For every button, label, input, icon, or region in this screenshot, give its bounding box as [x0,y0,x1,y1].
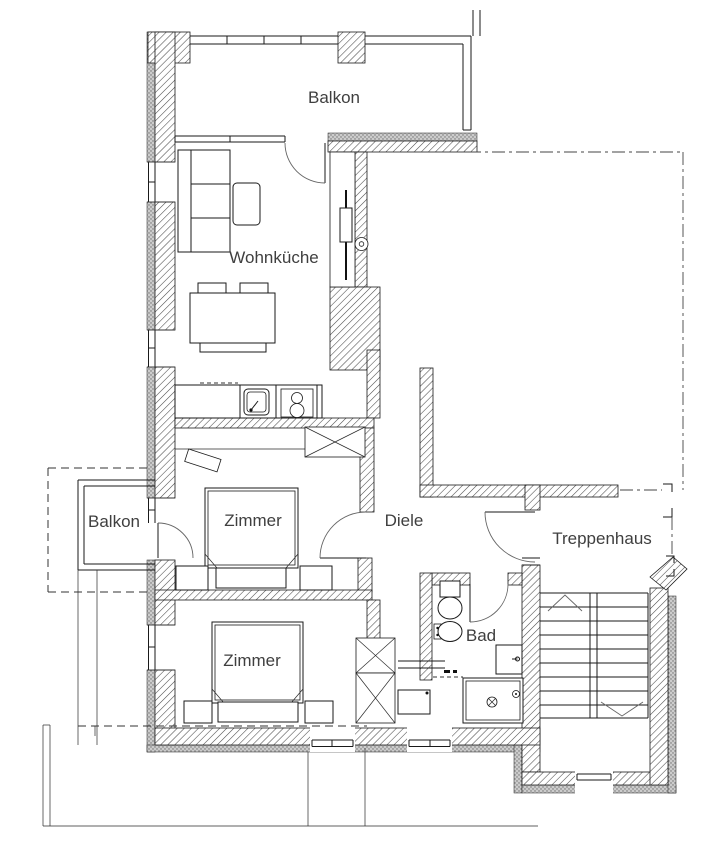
bed-bench [216,568,286,588]
washbasin-cabinet [496,645,522,674]
kitchen-sink [244,389,269,415]
room-label-zimmer-1: Zimmer [224,511,282,530]
floor-plan-page: Balkon Wohnküche Balkon Zimmer Diele Tre… [0,0,705,856]
room-label-treppenhaus: Treppenhaus [552,529,652,548]
nightstand [305,701,333,723]
coffee-table [233,183,260,225]
bench [200,343,266,352]
bed-bench [218,702,298,722]
stove [281,389,313,418]
room-label-wohnkueche: Wohnküche [229,248,318,267]
wardrobe-x [356,638,395,673]
bidet-icon [434,622,462,642]
floor-plan-canvas: Balkon Wohnküche Balkon Zimmer Diele Tre… [0,0,705,856]
chair [240,283,268,294]
dining-table [190,293,275,343]
room-label-diele: Diele [385,511,424,530]
nightstand [300,566,332,590]
shower [463,678,523,723]
wardrobe-x [356,673,395,723]
sofa [178,150,230,252]
dining-table-group [190,283,275,352]
chair [198,283,226,294]
nightstand [184,701,212,723]
flue-icon [355,238,368,251]
washing-machine [398,690,430,714]
wardrobe-x [305,427,365,457]
nightstand [176,566,208,590]
room-label-balkon-top: Balkon [308,88,360,107]
room-label-bad: Bad [466,626,496,645]
kitchen-counter [175,383,322,418]
room-label-balkon-left: Balkon [88,512,140,531]
toilet-icon [438,581,462,619]
room-label-zimmer-2: Zimmer [223,651,281,670]
